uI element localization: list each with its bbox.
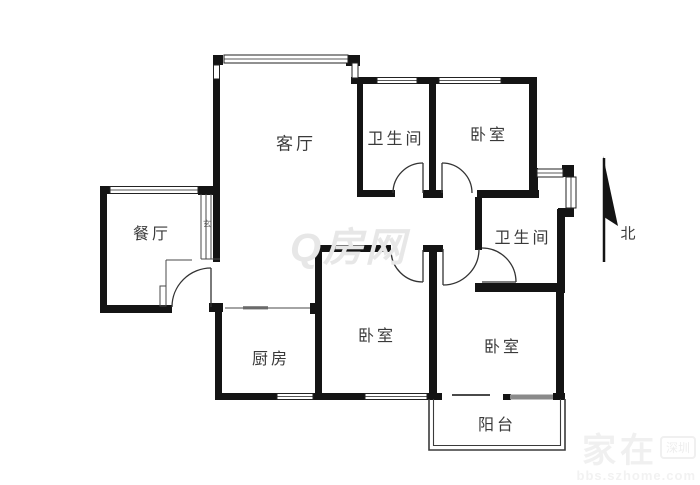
wall [427, 393, 442, 400]
door-arc [172, 268, 211, 307]
wall [215, 303, 222, 400]
room-label-bed2: 卧室 [358, 322, 396, 346]
wall [313, 393, 365, 400]
window [110, 187, 198, 194]
room-label-balcony: 阳台 [478, 411, 516, 435]
window-bar [510, 395, 553, 400]
window [439, 78, 501, 84]
corner-watermark-badge: 深圳 [660, 436, 696, 459]
window [377, 78, 417, 84]
wall [213, 55, 220, 262]
window [566, 177, 576, 208]
wall [557, 209, 565, 293]
wall [562, 165, 574, 177]
wall [429, 77, 436, 198]
room-label-bath1: 卫生间 [367, 125, 424, 149]
wall [475, 283, 565, 292]
room-label-kitchen: 厨房 [252, 345, 290, 369]
window [537, 169, 563, 177]
door-arc [443, 249, 479, 285]
wall [310, 303, 321, 314]
window [214, 65, 220, 79]
wall [475, 197, 482, 250]
window [352, 63, 358, 78]
door-arc [442, 163, 472, 193]
room-label-bed3: 卧室 [484, 333, 522, 357]
window [277, 394, 313, 400]
room-label-bath2: 卫生间 [494, 224, 551, 248]
door-arc [393, 163, 423, 193]
corner-watermark-site: bbs.szhome.com [577, 468, 696, 483]
room-label-bed1: 卧室 [470, 121, 508, 145]
room-label-dining: 餐厅 [133, 220, 171, 244]
floorplan-canvas: Q房网 [0, 0, 700, 485]
wall [100, 186, 107, 312]
wall [423, 190, 443, 198]
wall [215, 393, 277, 400]
foyer-label: 玄 [203, 219, 211, 230]
north-arrow [603, 156, 618, 262]
north-label: 北 [620, 223, 635, 244]
window [365, 394, 427, 400]
corner-watermark-brand: 家在 [582, 423, 658, 472]
wall [429, 245, 437, 398]
wall [213, 55, 223, 65]
wall [198, 186, 218, 195]
corner-watermark: 家在深圳 bbs.szhome.com [577, 423, 696, 483]
door-frame [160, 286, 166, 306]
wall [357, 77, 363, 193]
room-label-living: 客厅 [276, 130, 316, 155]
wall [503, 394, 511, 400]
wall [357, 190, 395, 197]
center-watermark: Q房网 [290, 215, 407, 273]
door-arc [482, 248, 516, 282]
wall [556, 292, 564, 397]
window [224, 55, 348, 63]
